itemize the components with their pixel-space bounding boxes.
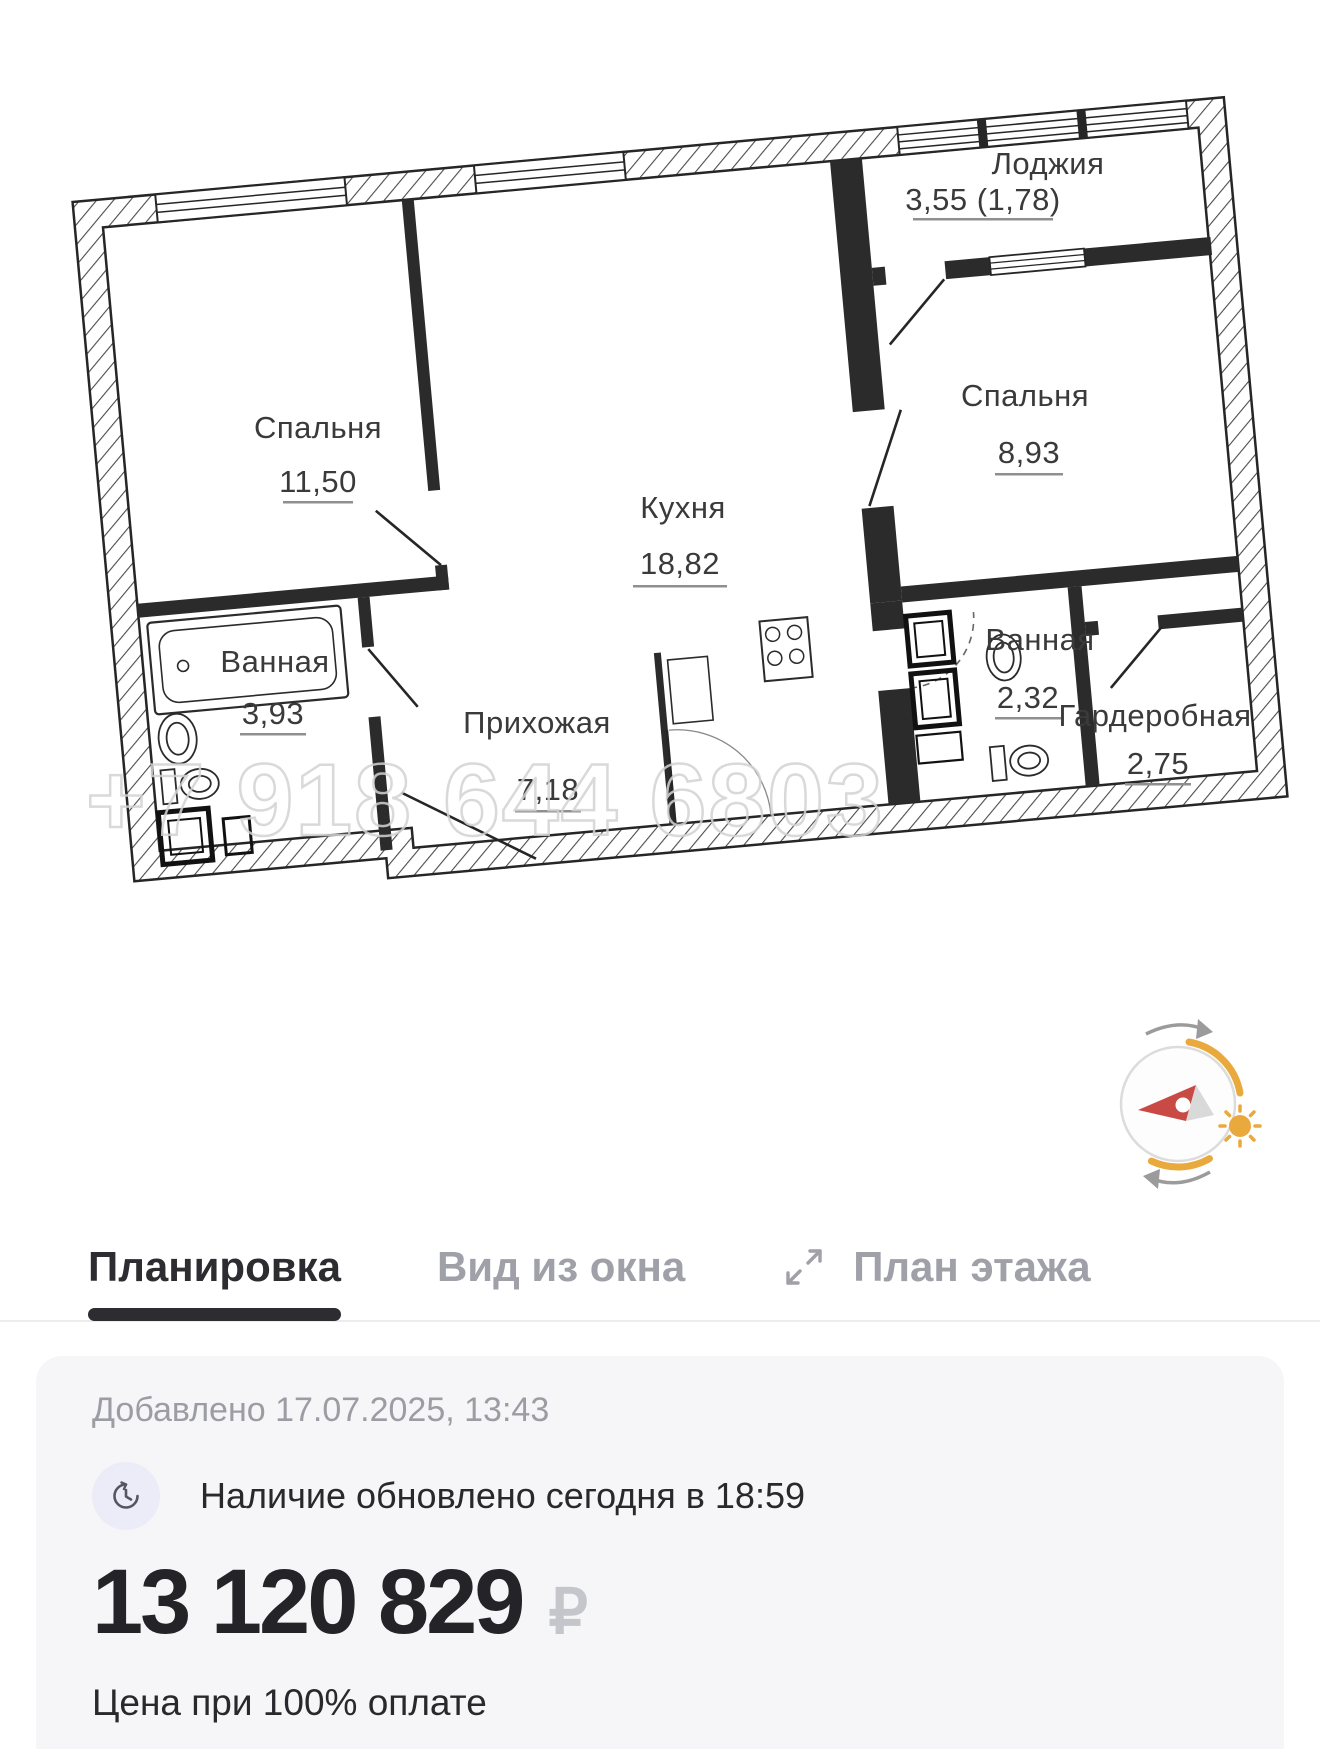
room-label-wardrobe: Гардеробная: [1058, 698, 1251, 733]
window-loggia-inner: [989, 249, 1085, 276]
sun-icon: [1220, 1106, 1260, 1146]
expand-icon: [781, 1244, 827, 1290]
room-area-wardrobe: 2,75: [1127, 746, 1189, 781]
compass-icon[interactable]: [1121, 1019, 1260, 1189]
availability-row: Наличие обновлено сегодня в 18:59: [92, 1462, 1240, 1530]
room-area-bedroom-left: 11,50: [279, 464, 357, 499]
tab-floor-plan[interactable]: План этажа: [781, 1243, 1090, 1291]
stove: [759, 617, 812, 681]
clock-icon: [92, 1462, 160, 1530]
price-note: Цена при 100% оплате: [92, 1682, 1240, 1724]
floorplan-svg: Лоджия 3,55 (1,78) Спальня 11,50 Кухня 1…: [0, 0, 1320, 1190]
toilet-right: [990, 742, 1050, 781]
room-area-bath-right: 2,32: [997, 680, 1059, 715]
room-area-kitchen: 18,82: [640, 546, 720, 581]
listing-details-card: Добавлено 17.07.2025, 13:43 Наличие обно…: [36, 1356, 1284, 1749]
currency-symbol: ₽: [548, 1582, 587, 1644]
tab-window-view[interactable]: Вид из окна: [437, 1243, 685, 1291]
room-label-bath-left: Ванная: [220, 644, 329, 679]
active-tab-underline: [88, 1308, 341, 1321]
tab-layout[interactable]: Планировка: [88, 1243, 341, 1291]
price-value: 13 120 829: [92, 1556, 522, 1648]
room-label-bedroom-left: Спальня: [254, 410, 382, 445]
room-labels: Лоджия 3,55 (1,78) Спальня 11,50 Кухня 1…: [220, 146, 1251, 813]
room-label-bath-right: Ванная: [985, 622, 1094, 657]
window-kitchen: [474, 152, 626, 193]
room-area-bedroom-right: 8,93: [998, 435, 1060, 470]
room-area-loggia: 3,55 (1,78): [905, 182, 1060, 217]
hall-cabinet: [668, 656, 714, 723]
phone-watermark: +7 918 644 6803: [86, 742, 885, 859]
room-label-kitchen: Кухня: [640, 490, 725, 525]
window-bedroom-left: [155, 177, 347, 222]
room-label-loggia: Лоджия: [992, 146, 1105, 181]
price-row: 13 120 829 ₽: [92, 1556, 1240, 1648]
view-tabs: Планировка Вид из окна План этажа: [0, 1243, 1320, 1322]
room-area-bath-left: 3,93: [242, 696, 304, 731]
added-date: Добавлено 17.07.2025, 13:43: [92, 1390, 1240, 1431]
room-label-bedroom-right: Спальня: [961, 378, 1089, 413]
floorplan-section: Лоджия 3,55 (1,78) Спальня 11,50 Кухня 1…: [0, 0, 1320, 1190]
availability-text: Наличие обновлено сегодня в 18:59: [200, 1475, 805, 1517]
room-label-hallway: Прихожая: [463, 705, 611, 740]
